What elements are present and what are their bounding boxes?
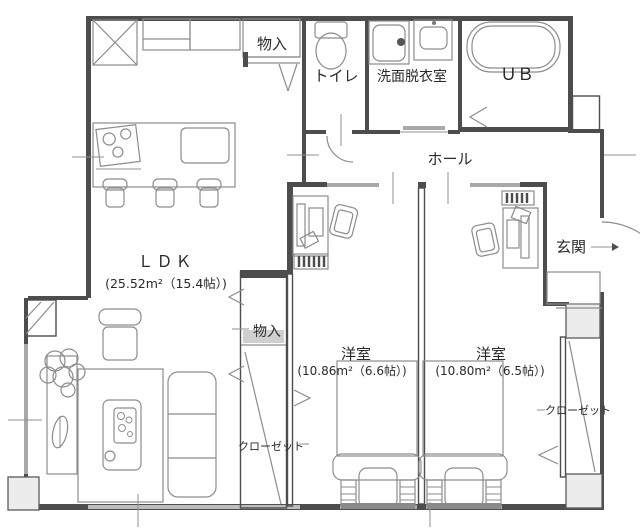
coffee-table bbox=[103, 400, 141, 470]
window-left bbox=[24, 344, 28, 474]
entrance-door-arc bbox=[602, 222, 640, 292]
label-closet-right: クローゼット bbox=[545, 404, 611, 417]
pillar bbox=[8, 477, 39, 510]
label-ldk-area: (25.52m²（15.4帖）) bbox=[105, 276, 227, 291]
sliding-door-washroom bbox=[403, 126, 445, 130]
label-bedroom2: 洋室 bbox=[476, 345, 506, 363]
storage-column-left bbox=[240, 270, 287, 508]
labels: 物入 トイレ 洗面脱衣室 ＵＢ ホール 玄関 ＬＤＫ (25.52m²（15.4… bbox=[105, 35, 611, 453]
bed-2 bbox=[419, 361, 507, 509]
desk-chair-2 bbox=[471, 222, 500, 257]
counter-chairs bbox=[103, 179, 221, 207]
kitchen bbox=[93, 19, 240, 207]
label-storage-top: 物入 bbox=[257, 35, 287, 53]
label-hall: ホール bbox=[427, 150, 472, 168]
kitchen-cabinet-2 bbox=[190, 19, 240, 50]
wall-step-hatch bbox=[26, 300, 56, 336]
kitchen-cabinet-1 bbox=[143, 19, 190, 50]
plant-leaf bbox=[50, 415, 70, 449]
closet-right-door-chevron bbox=[539, 446, 558, 464]
walls bbox=[8, 16, 604, 510]
closet-left-door-chevron bbox=[229, 366, 244, 382]
stove bbox=[96, 125, 140, 167]
label-bath: ＵＢ bbox=[500, 65, 534, 85]
living-furniture bbox=[40, 309, 216, 502]
vanity-sink bbox=[414, 20, 452, 60]
desk-2 bbox=[503, 206, 538, 268]
closet-left-door-chevron2 bbox=[294, 390, 310, 406]
desk-chair-1 bbox=[329, 204, 359, 240]
label-toilet: トイレ bbox=[313, 67, 358, 85]
storage-top-door bbox=[279, 64, 297, 91]
label-washroom: 洗面脱衣室 bbox=[377, 68, 447, 85]
label-ldk: ＬＤＫ bbox=[137, 252, 194, 271]
desk-1 bbox=[293, 196, 328, 256]
dimension-ticks bbox=[8, 114, 636, 527]
bath-folding-door bbox=[470, 107, 487, 127]
toilet-door-arc bbox=[327, 136, 353, 162]
label-bedroom1-area: (10.86m²（6.6帖）) bbox=[297, 363, 406, 378]
floor-plan: 物入 トイレ 洗面脱衣室 ＵＢ ホール 玄関 ＬＤＫ (25.52m²（15.4… bbox=[0, 0, 640, 528]
kitchen-sink bbox=[181, 128, 229, 163]
sofa bbox=[168, 372, 216, 497]
sliding-door-bedroom2 bbox=[470, 183, 520, 187]
washing-machine bbox=[369, 21, 409, 64]
rug bbox=[78, 369, 163, 502]
bookshelf-2 bbox=[502, 191, 534, 205]
refrigerator-space bbox=[93, 20, 137, 65]
bed-1 bbox=[333, 361, 421, 509]
toilet-fixture bbox=[315, 22, 347, 69]
pipe-space bbox=[573, 96, 600, 132]
storage-mid-door-chevron bbox=[229, 289, 244, 305]
label-storage-mid: 物入 bbox=[253, 324, 281, 340]
label-bedroom2-area: (10.80m²（6.5帖）) bbox=[435, 363, 544, 378]
entrance-step bbox=[547, 272, 600, 304]
label-bedroom1: 洋室 bbox=[341, 345, 371, 363]
sliding-door-bedroom1 bbox=[327, 183, 379, 187]
label-closet-left: クローゼット bbox=[238, 440, 304, 453]
label-entrance: 玄関 bbox=[556, 238, 586, 256]
armchair bbox=[99, 309, 141, 360]
